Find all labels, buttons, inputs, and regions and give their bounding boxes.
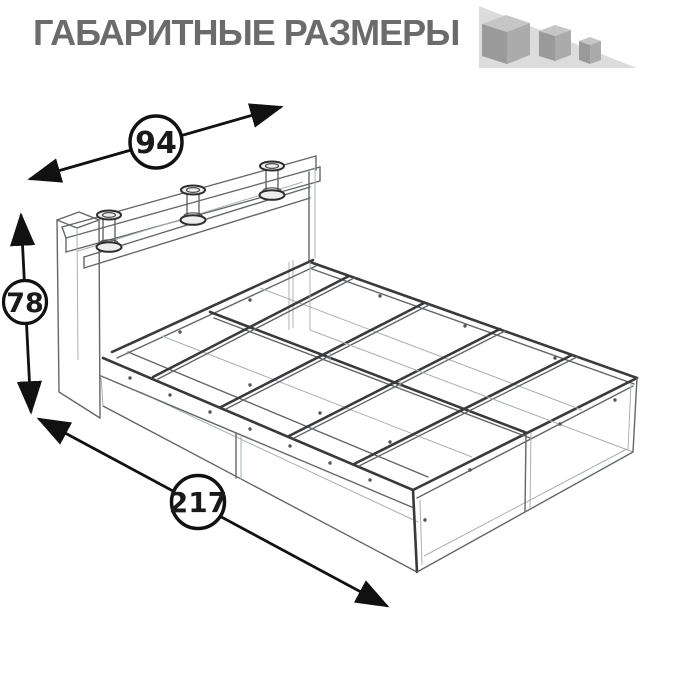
- dimension-width-value: 94: [135, 126, 177, 161]
- cube-large: [482, 15, 530, 64]
- page-title: ГАБАРИТНЫЕ РАЗМЕРЫ: [33, 12, 459, 54]
- shrinking-cubes-icon: [470, 2, 645, 74]
- headboard-spools: [97, 162, 285, 252]
- spool-left: [97, 211, 122, 252]
- dimension-length: 217: [39, 419, 387, 606]
- cube-medium: [539, 25, 571, 61]
- dimension-width: 94: [30, 107, 281, 179]
- bed-sketch: [57, 156, 637, 572]
- cube-small: [579, 37, 601, 64]
- dimensions-diagram-page: 94 78 217 ГАБАРИТНЫЕ РАЗМЕРЫ: [0, 0, 700, 690]
- dimension-height-value: 78: [6, 288, 44, 319]
- bed-drawing: 94 78 217: [0, 0, 700, 690]
- front-drawers: [101, 376, 417, 572]
- dimension-height: 78: [4, 215, 47, 412]
- dimension-length-value: 217: [169, 486, 227, 519]
